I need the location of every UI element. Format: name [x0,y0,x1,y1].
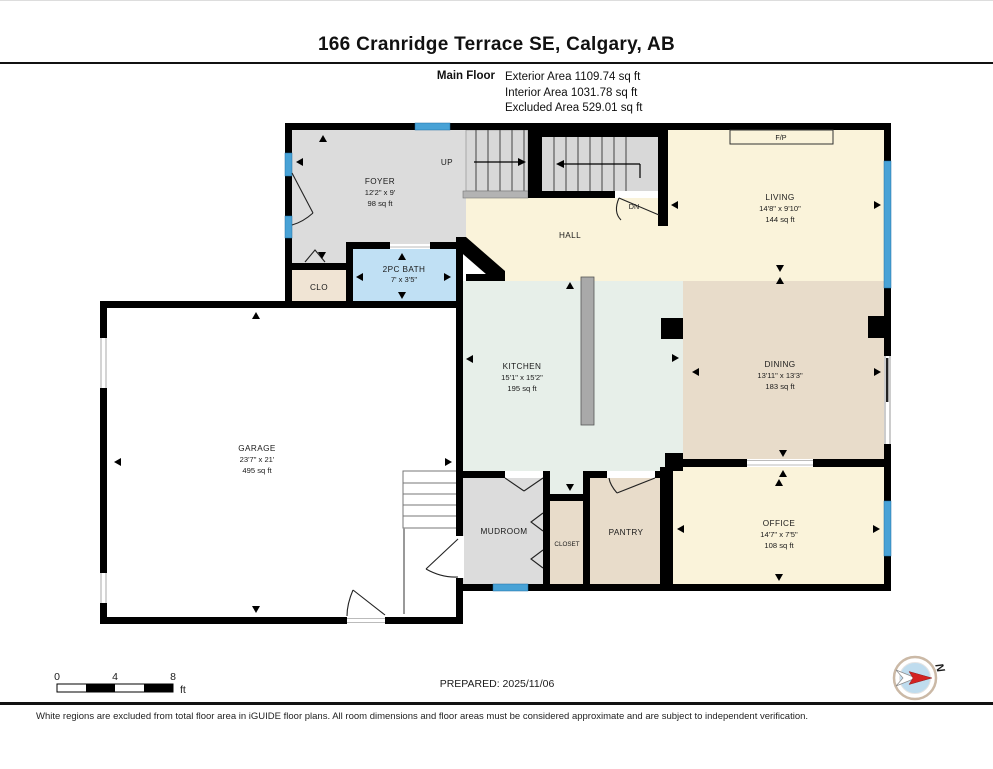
window-office-right [884,501,891,556]
room-label-hall: HALL [559,231,581,240]
room-area-kitchen: 195 sq ft [507,384,537,393]
scale-tick-8: 8 [170,671,176,683]
scale-tick-0: 0 [54,671,60,683]
room-dims-living: 14'8" x 9'10" [759,204,801,213]
room-label-bath: 2PC BATH [383,265,426,274]
window-mudroom-bottom [493,584,528,591]
fireplace: F/P [730,130,833,144]
room-label-foyer: FOYER [365,177,395,186]
room-dims-bath: 7' x 3'5" [391,275,418,284]
stairs-up-label: UP [441,158,453,167]
room-label-pantry: PANTRY [609,528,644,537]
kitchen-floor [463,281,683,471]
footer-divider [0,702,993,705]
garage-mudroom-opening [455,536,464,578]
compass-icon: N [894,657,946,699]
scale-bar: 0 4 8 ft [54,671,186,696]
room-area-dining: 183 sq ft [765,382,795,391]
disclaimer-text: White regions are excluded from total fl… [36,711,808,722]
scale-tick-4: 4 [112,671,118,683]
room-dims-garage: 23'7" x 21' [240,455,275,464]
room-area-office: 108 sq ft [764,541,794,550]
floorplan-page: 166 Cranridge Terrace SE, Calgary, AB Ma… [0,0,993,769]
window-living-right [884,161,891,288]
window-foyer-left1 [285,153,292,176]
stairs-down [542,130,658,191]
dining-floor [683,281,884,459]
room-area-living: 144 sq ft [765,215,795,224]
floorplan-drawing: F/P FOYER 12'2" x 9' 98 sq ft UP DN [0,1,993,769]
fireplace-label: F/P [775,133,786,142]
room-dims-kitchen: 15'1" x 15'2" [501,373,543,382]
dn-door-opening [615,191,658,198]
window-foyer-top [415,123,450,130]
room-area-garage: 495 sq ft [242,466,272,475]
room-label-mudroom: MUDROOM [481,527,528,536]
prepared-date: PREPARED: 2025/11/06 [440,678,555,690]
window-foyer-left2 [285,216,292,238]
room-label-kitchen: KITCHEN [503,362,542,371]
room-label-dining: DINING [764,360,795,369]
hall-floor2 [658,226,668,281]
room-label-garage: GARAGE [238,444,276,453]
room-label-closet: CLOSET [554,541,579,548]
room-label-living: LIVING [765,193,794,202]
room-dims-office: 14'7" x 7'5" [760,530,798,539]
room-dims-dining: 13'11" x 13'3" [757,371,803,380]
scale-unit: ft [180,684,186,696]
room-area-foyer: 98 sq ft [368,199,394,208]
stairs-dn-label: DN [629,202,639,211]
room-dims-foyer: 12'2" x 9' [365,188,396,197]
stairs-up [463,130,528,198]
kitchen-island [581,277,594,425]
room-label-clo: CLO [310,283,328,292]
room-label-office: OFFICE [763,519,796,528]
